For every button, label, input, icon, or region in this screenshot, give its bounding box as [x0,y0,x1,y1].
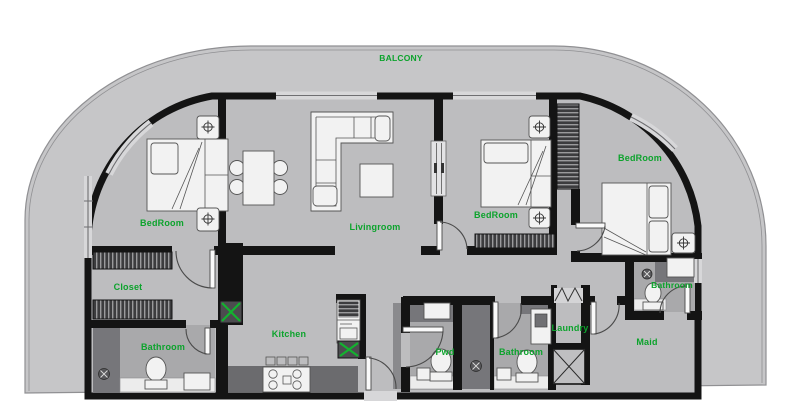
toilet-bathroom-left [145,357,167,389]
floor-drain-icon [99,369,110,380]
dining-chair [273,161,288,176]
room-label-balcony: BALCONY [379,53,423,63]
duct-marker-icon [220,301,242,323]
closet-wardrobe-bottom [93,300,172,319]
room-label-bedroom-left: BedRoom [140,218,184,228]
shower-dark-tile [461,301,491,389]
room-label-livingroom: Livingroom [350,222,401,232]
room-label-bathroom-left: Bathroom [141,342,185,352]
room-label-bathroom-middle: Bathroom [499,347,543,357]
pillow [649,186,668,218]
room-label-bedroom-right: BedRoom [618,153,662,163]
bifold-door-laundry [554,288,583,303]
room-label-laundry: Laundry [552,323,589,333]
room-label-closet: Closet [114,282,143,292]
bedroom-right-wardrobe [557,104,579,189]
floor-plan-page: BALCONYBedRoomLivingroomBedRoomBedRoomCl… [0,0,800,417]
dining-chair [230,161,245,176]
nightstand-right [672,233,695,253]
sofa-pillow [375,116,390,141]
shower-unit-bathroom-middle [531,309,551,344]
pocket-window-living-bedroom [431,141,446,196]
nightstand-left-bottom [197,208,219,231]
dining-chair [273,180,288,195]
duct-marker-icon [338,341,360,358]
bathroom-left-dark-tile [93,325,120,393]
floor-plan-drawing: BALCONYBedRoomLivingroomBedRoomBedRoomCl… [0,0,800,417]
window-left-wall [84,176,93,258]
nightstand-middle-bottom [529,208,550,228]
entry-threshold [364,391,397,401]
fridge-unit [337,300,360,343]
pillow [484,143,528,163]
bed-middle [481,140,551,207]
nightstand-middle-top [529,116,550,138]
small-sink-pwd [417,368,430,380]
sofa-pillow [313,186,337,206]
dining-table [243,151,274,205]
floor-drain-icon [471,361,482,372]
sink-bathroom-left [184,373,210,390]
cabinet-hatch [339,302,359,318]
bedroom-middle-wardrobe [475,234,555,248]
floor-drain-icon [642,269,652,279]
coffee-table [360,164,393,197]
room-label-pwd: Pwd [435,347,454,357]
sink-bathroom-right [667,258,694,277]
nightstand-left-top [197,116,219,139]
bed-right [602,183,671,255]
shaft-x-icon [553,349,585,384]
room-label-bathroom-right: Bathroom [651,280,693,290]
bed-left [147,139,228,211]
dining-chair [230,180,245,195]
room-label-kitchen: Kitchen [272,329,306,339]
pillow [649,221,668,252]
pillow [151,143,178,174]
sink-pwd [424,303,450,319]
room-label-maid: Maid [636,337,657,347]
room-label-bedroom-middle: BedRoom [474,210,518,220]
small-sink-bathroom-middle [497,368,511,380]
closet-wardrobe-top [93,252,172,269]
